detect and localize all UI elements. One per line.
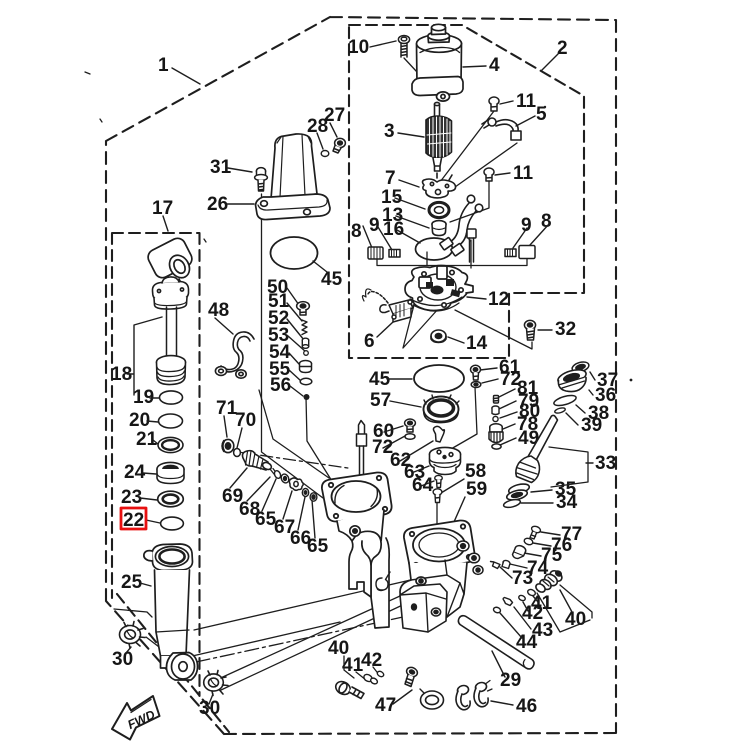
svg-text:71: 71 (216, 398, 238, 419)
svg-text:24: 24 (124, 462, 146, 483)
svg-text:1: 1 (158, 55, 169, 76)
svg-text:59: 59 (466, 479, 487, 500)
svg-text:69: 69 (222, 486, 243, 507)
svg-text:30: 30 (112, 649, 133, 670)
svg-text:33: 33 (595, 453, 616, 474)
svg-text:39: 39 (581, 415, 602, 436)
svg-text:11: 11 (513, 163, 534, 184)
svg-text:9: 9 (521, 215, 532, 236)
svg-text:42: 42 (361, 650, 382, 671)
svg-text:81: 81 (517, 378, 539, 399)
svg-text:46: 46 (516, 696, 537, 717)
svg-text:47: 47 (375, 695, 396, 716)
svg-text:10: 10 (348, 37, 369, 58)
svg-text:67: 67 (274, 517, 295, 538)
svg-text:4: 4 (489, 55, 500, 76)
svg-text:35: 35 (555, 479, 577, 500)
svg-text:21: 21 (136, 429, 158, 450)
svg-text:7: 7 (385, 168, 396, 189)
svg-text:25: 25 (121, 572, 143, 593)
svg-text:6: 6 (364, 331, 375, 352)
svg-text:14: 14 (466, 333, 488, 354)
svg-text:26: 26 (207, 194, 228, 215)
svg-text:40: 40 (565, 609, 586, 630)
svg-text:8: 8 (541, 211, 552, 232)
svg-text:57: 57 (370, 390, 391, 411)
svg-text:3: 3 (384, 121, 395, 142)
svg-text:9: 9 (369, 215, 380, 236)
svg-text:16: 16 (383, 219, 404, 240)
svg-text:45: 45 (321, 269, 343, 290)
svg-text:37: 37 (597, 370, 618, 391)
svg-text:77: 77 (561, 524, 582, 545)
svg-text:15: 15 (381, 187, 403, 208)
svg-text:23: 23 (121, 487, 142, 508)
svg-text:8: 8 (351, 221, 362, 242)
svg-text:48: 48 (208, 300, 229, 321)
svg-text:56: 56 (270, 375, 291, 396)
svg-text:12: 12 (488, 289, 509, 310)
svg-text:2: 2 (557, 38, 568, 59)
svg-text:80: 80 (519, 401, 540, 422)
svg-text:32: 32 (555, 319, 576, 340)
svg-text:11: 11 (516, 91, 537, 112)
svg-text:70: 70 (235, 410, 256, 431)
